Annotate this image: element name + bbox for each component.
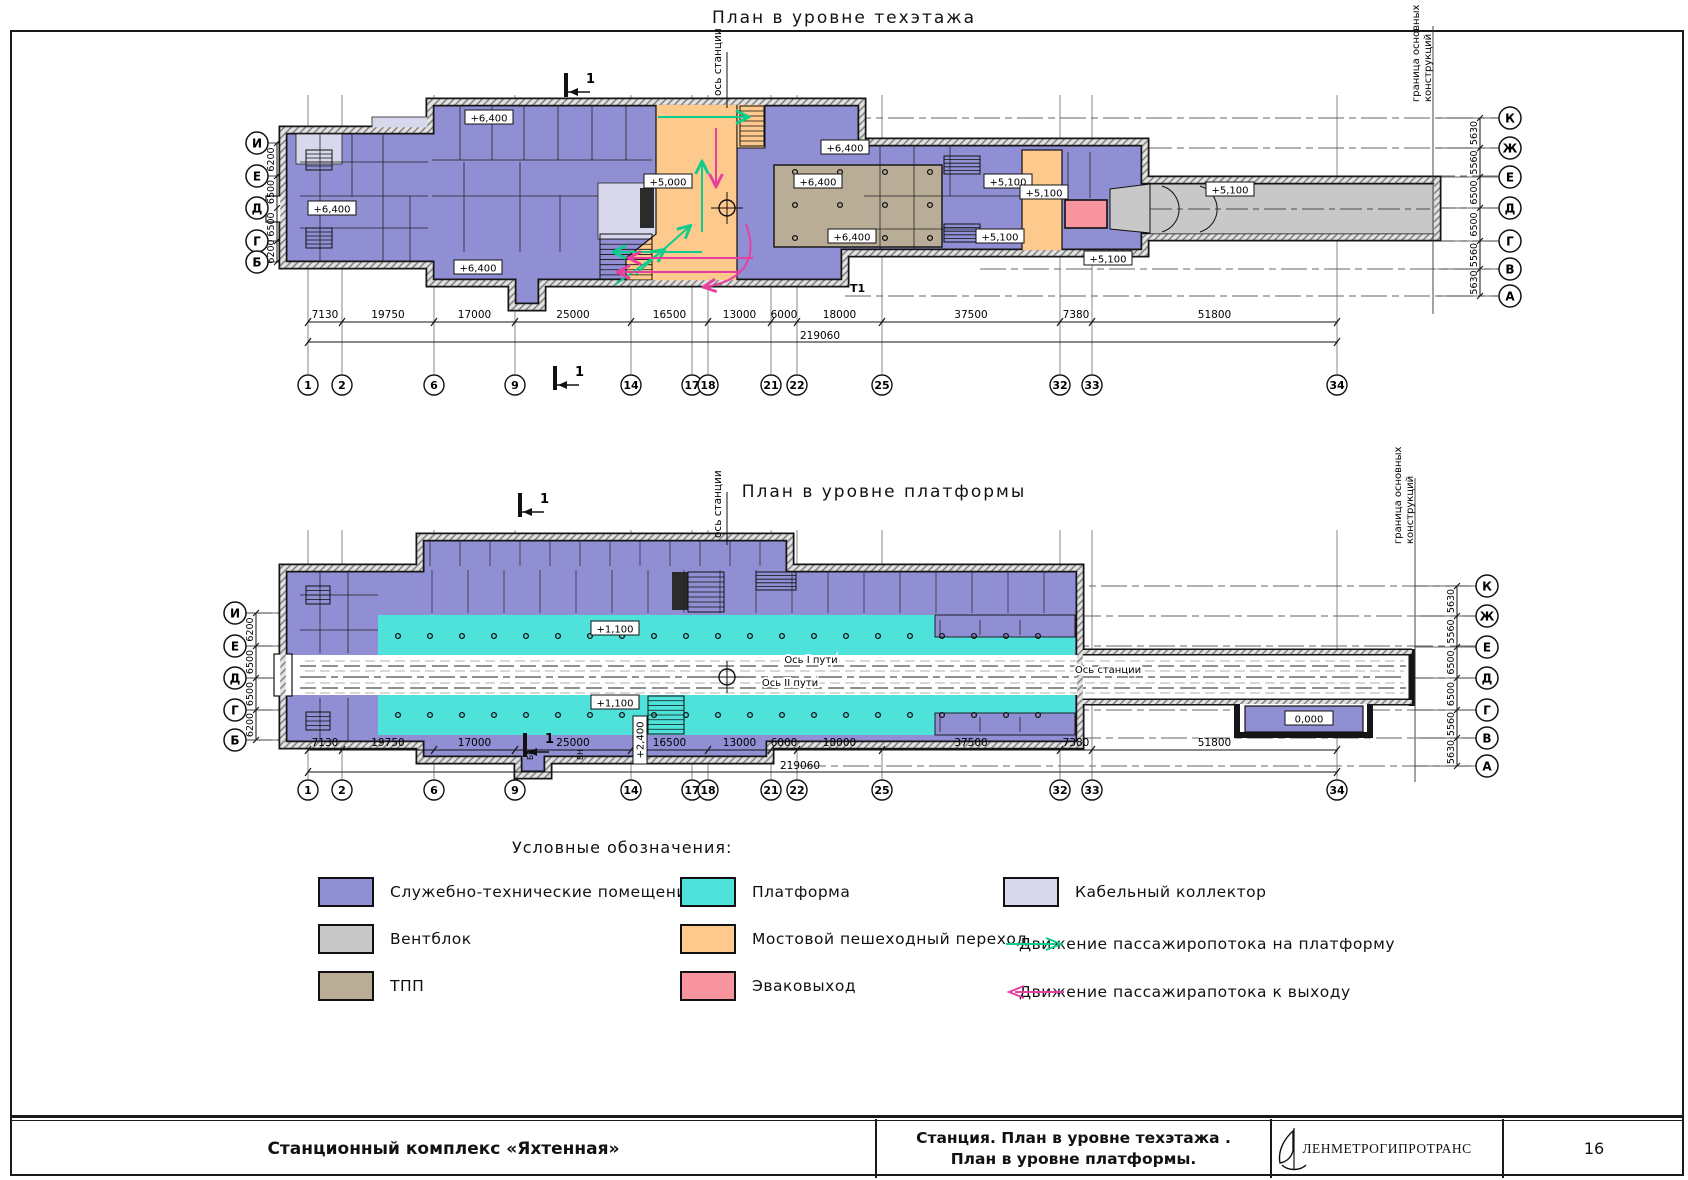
legend-label: ТПП xyxy=(390,977,424,995)
structure-boundary-label-1: граница основных xyxy=(1393,447,1404,544)
column-number: 9 xyxy=(511,784,519,797)
axis-letter: Д xyxy=(252,202,263,216)
evacuation-exit-room xyxy=(1065,200,1107,228)
axis-letter: Е xyxy=(231,640,239,654)
dimension-value: 25000 xyxy=(556,737,589,749)
dimension-value: 19750 xyxy=(371,737,404,749)
elevation-value: +6,400 xyxy=(826,144,863,155)
elevation-value: +2,400 xyxy=(636,721,647,758)
axis-letter: Е xyxy=(1506,171,1514,185)
dimension-value: 7130 xyxy=(312,309,339,321)
column-number: 1 xyxy=(304,379,312,392)
t1-mark: Т1 xyxy=(850,282,865,295)
total-dimension-value: 219060 xyxy=(780,760,820,772)
column-number: 18 xyxy=(700,784,715,797)
dimension-value: 16500 xyxy=(653,309,686,321)
column-number: 6 xyxy=(430,379,438,392)
side-dimension-value: 6200 xyxy=(266,147,277,171)
elevation-value: +5,100 xyxy=(1025,189,1062,200)
sheet-title: Станция. План в уровне техэтажа . План в… xyxy=(877,1119,1270,1178)
legend-item: Мостовой пешеходный переход xyxy=(680,923,1028,955)
dimension-value: 7130 xyxy=(312,737,339,749)
axis-letter: Б xyxy=(230,734,239,748)
tech-floor-plan: 7130197501700025000165001300060001800037… xyxy=(0,0,1688,430)
side-dimension-value: 5630 xyxy=(1446,589,1457,613)
structure-boundary-label-2: конструкций xyxy=(1405,476,1416,544)
column-number: 2 xyxy=(338,379,346,392)
side-dimension-value: 6500 xyxy=(266,212,277,236)
dimension-value: 37500 xyxy=(954,737,987,749)
section-mark-bar xyxy=(553,366,557,390)
sail-logo-icon xyxy=(1272,1125,1316,1173)
legend-label: Эваковыход xyxy=(752,977,856,995)
side-dimension-value: 6500 xyxy=(1469,212,1480,236)
legend-header: Условные обозначения: xyxy=(512,838,732,857)
elevation-value: +6,400 xyxy=(833,233,870,244)
side-dimension-value: 6500 xyxy=(245,650,256,674)
side-dimension-value: 5630 xyxy=(1469,270,1480,294)
flow-right-arrow-icon xyxy=(1003,933,1067,955)
dimension-value: 18000 xyxy=(823,737,856,749)
legend-label: Движение пассажирапотока к выходу xyxy=(1019,983,1351,1001)
elevation-value: +5,100 xyxy=(981,233,1018,244)
dimension-value: 37500 xyxy=(954,309,987,321)
axis-letter: А xyxy=(1482,760,1492,774)
column-number: 1 xyxy=(304,784,312,797)
side-dimension-value: 5630 xyxy=(1469,121,1480,145)
axis-letter: Г xyxy=(1483,704,1491,718)
section-mark-vn: ВН xyxy=(576,749,585,760)
axis-letter: Г xyxy=(231,704,239,718)
section-mark-bv: БВ xyxy=(526,750,535,760)
sheet-title-line2: План в уровне платформы. xyxy=(916,1149,1231,1170)
legend-swatch xyxy=(1003,877,1059,907)
side-dimension-value: 6500 xyxy=(1446,682,1457,706)
column-number: 18 xyxy=(700,379,715,392)
dimension-value: 18000 xyxy=(823,309,856,321)
side-dimension-value: 5560 xyxy=(1469,243,1480,267)
axis-letter: Д xyxy=(230,672,241,686)
axis-letter: Д xyxy=(1482,672,1493,686)
elevation-value: +6,400 xyxy=(470,114,507,125)
company-name: ЛЕНМЕТРОГИПРОТРАНС xyxy=(1302,1141,1471,1157)
section-mark-arrowhead xyxy=(558,381,567,389)
platform-room-lower xyxy=(935,713,1075,735)
elevation-value: +5,000 xyxy=(649,178,686,189)
column-number: 22 xyxy=(789,379,804,392)
dimension-value: 25000 xyxy=(556,309,589,321)
dimension-value: 19750 xyxy=(371,309,404,321)
ventblock-funnel xyxy=(1110,184,1150,233)
side-dimension-value: 6200 xyxy=(266,239,277,263)
structure-boundary-label-2: конструкций xyxy=(1423,34,1434,102)
dimension-value: 13000 xyxy=(723,737,756,749)
column-number: 6 xyxy=(430,784,438,797)
legend-item: Кабельный коллектор xyxy=(1003,876,1266,908)
dimension-value: 7380 xyxy=(1063,737,1090,749)
cable-collector-room xyxy=(296,134,342,164)
track2-axis-label: Ось II пути xyxy=(762,678,818,689)
dimension-value: 7380 xyxy=(1063,309,1090,321)
elevation-value: +6,400 xyxy=(313,205,350,216)
elevation-value: +6,400 xyxy=(799,178,836,189)
dimension-value: 13000 xyxy=(723,309,756,321)
axis-letter: Ж xyxy=(1480,610,1495,624)
legend-label: Движение пассажиропотока на платформу xyxy=(1019,935,1395,953)
legend-swatch xyxy=(680,924,736,954)
column-number: 2 xyxy=(338,784,346,797)
pedestrian-bridge-zone-2 xyxy=(1022,150,1062,251)
column-number: 33 xyxy=(1084,379,1099,392)
axis-letter: И xyxy=(252,137,262,151)
company-logo-cell: ЛЕНМЕТРОГИПРОТРАНС xyxy=(1272,1119,1502,1178)
section-mark-bar xyxy=(518,493,522,517)
page-number: 16 xyxy=(1504,1119,1684,1178)
legend-swatch xyxy=(318,971,374,1001)
section-mark-arrowhead xyxy=(569,88,578,96)
total-dimension-value: 219060 xyxy=(800,330,840,342)
section-mark-number: 1 xyxy=(575,365,584,380)
dimension-value: 6000 xyxy=(771,309,798,321)
axis-letter: Е xyxy=(1483,641,1491,655)
legend-item: Платформа xyxy=(680,876,850,908)
track1-axis-label: Ось I пути xyxy=(784,655,837,666)
column-number: 9 xyxy=(511,379,519,392)
elevation-value: +5,100 xyxy=(1211,186,1248,197)
side-dimension-value: 6200 xyxy=(245,617,256,641)
legend-swatch xyxy=(680,877,736,907)
title-block-top-rule xyxy=(10,1115,1684,1118)
dimension-value: 6000 xyxy=(771,737,798,749)
side-dimension-value: 6500 xyxy=(1446,650,1457,674)
axis-letter: В xyxy=(1505,263,1514,277)
column-number: 32 xyxy=(1052,784,1067,797)
legend-label: Кабельный коллектор xyxy=(1075,883,1266,901)
axis-letter: Д xyxy=(1505,202,1516,216)
axis-letter: Г xyxy=(1506,235,1514,249)
dimension-value: 17000 xyxy=(458,737,491,749)
dimension-value: 51800 xyxy=(1198,737,1231,749)
axis-letter: К xyxy=(1505,112,1515,126)
column-number: 34 xyxy=(1329,379,1345,392)
column-number: 34 xyxy=(1329,784,1345,797)
platform-plan: Ось I пути Ось II пути Ось станции 71301… xyxy=(0,430,1688,850)
column-number: 14 xyxy=(623,379,639,392)
side-dimension-value: 5630 xyxy=(1446,740,1457,764)
side-dimension-value: 6500 xyxy=(266,180,277,204)
column-number: 14 xyxy=(623,784,639,797)
side-dimension-value: 6500 xyxy=(1469,180,1480,204)
legend-label: Служебно-технические помещения xyxy=(390,883,697,901)
column-number: 21 xyxy=(763,784,778,797)
station-axis-vertical-label: ось станции xyxy=(712,470,724,538)
axis-letter: А xyxy=(1505,290,1515,304)
flow-left-arrow-icon xyxy=(1003,981,1067,1003)
column-number: 32 xyxy=(1052,379,1067,392)
legend-swatch xyxy=(318,924,374,954)
elevator-lobby xyxy=(598,183,664,239)
elevation-value: 0,000 xyxy=(1295,715,1324,726)
sheet-title-line1: Станция. План в уровне техэтажа . xyxy=(916,1128,1231,1149)
side-dimension-value: 5560 xyxy=(1469,150,1480,174)
axis-letter: И xyxy=(230,607,240,621)
axis-letter: Е xyxy=(253,170,261,184)
section-mark-number: 1 xyxy=(540,492,549,507)
elevation-value: +1,100 xyxy=(596,699,633,710)
axis-letter: Б xyxy=(252,256,261,270)
section-mark-number: 1 xyxy=(545,732,554,747)
column-number: 25 xyxy=(874,379,889,392)
legend-item: Движение пассажиропотока на платформу xyxy=(1003,928,1395,960)
side-dimension-value: 5560 xyxy=(1446,619,1457,643)
legend-item: ТПП xyxy=(318,970,424,1002)
station-axis-center-label: Ось станции xyxy=(1075,665,1141,676)
legend-swatch xyxy=(680,971,736,1001)
dimension-value: 17000 xyxy=(458,309,491,321)
elevation-value: +5,100 xyxy=(1089,255,1126,266)
legend-item: Эваковыход xyxy=(680,970,856,1002)
legend-item: Служебно-технические помещения xyxy=(318,876,697,908)
shaft-dark-2 xyxy=(672,572,688,610)
shaft-dark xyxy=(640,188,654,228)
section-mark-bar xyxy=(564,73,568,97)
section-mark-arrowhead xyxy=(523,508,532,516)
axis-letter: К xyxy=(1482,580,1492,594)
axis-letter: В xyxy=(1482,732,1491,746)
side-dimension-value: 6200 xyxy=(245,713,256,737)
side-dimension-value: 5560 xyxy=(1446,712,1457,736)
side-dimension-value: 6500 xyxy=(245,682,256,706)
dimension-value: 16500 xyxy=(653,737,686,749)
project-name: Станционный комплекс «Яхтенная» xyxy=(12,1119,875,1178)
legend-item: Движение пассажирапотока к выходу xyxy=(1003,976,1351,1008)
drawing-sheet: План в уровне техэтажа План в уровне пла… xyxy=(0,0,1688,1180)
elevation-value: +1,100 xyxy=(596,625,633,636)
column-number: 22 xyxy=(789,784,804,797)
structure-boundary-label-1: граница основных xyxy=(1411,5,1422,102)
section-mark-number: 1 xyxy=(586,72,595,87)
legend-item: Вентблок xyxy=(318,923,472,955)
axis-letter: Г xyxy=(253,235,261,249)
column-number: 25 xyxy=(874,784,889,797)
legend-label: Мостовой пешеходный переход xyxy=(752,930,1028,948)
axis-letter: Ж xyxy=(1503,142,1518,156)
legend-swatch xyxy=(318,877,374,907)
station-axis-vertical-label: ось станции xyxy=(712,28,724,96)
legend-label: Платформа xyxy=(752,883,850,901)
dimension-value: 51800 xyxy=(1198,309,1231,321)
elevation-value: +6,400 xyxy=(459,264,496,275)
column-number: 33 xyxy=(1084,784,1099,797)
legend-label: Вентблок xyxy=(390,930,472,948)
column-number: 21 xyxy=(763,379,778,392)
tunnel-interior xyxy=(1080,656,1412,700)
